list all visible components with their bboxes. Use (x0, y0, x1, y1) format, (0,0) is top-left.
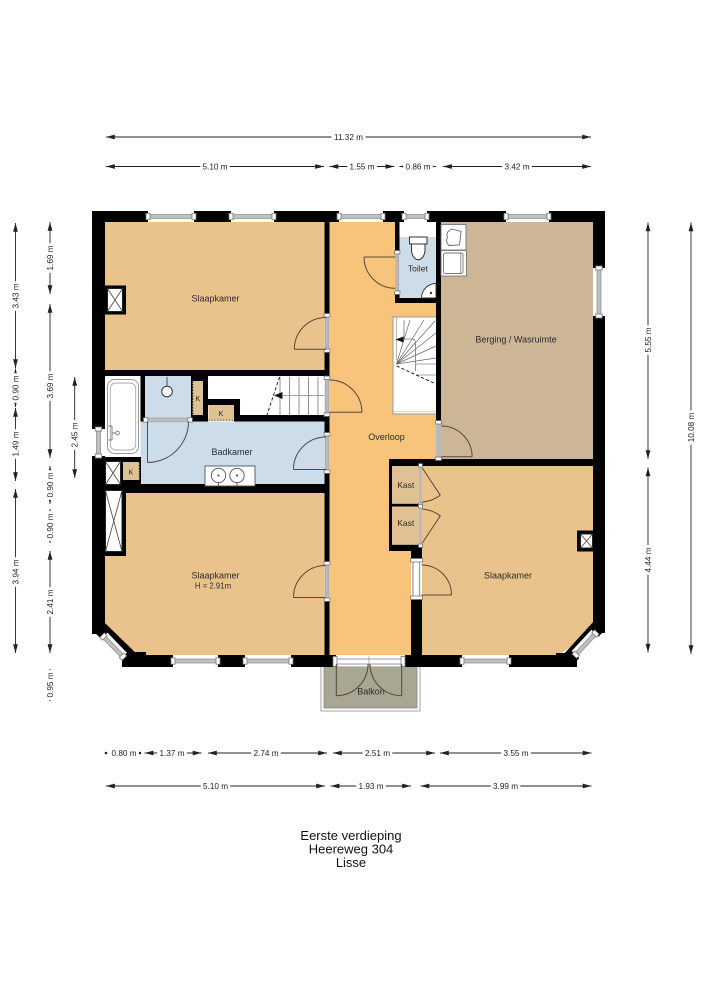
svg-text:Badkamer: Badkamer (211, 447, 252, 457)
svg-text:2.45 m: 2.45 m (71, 422, 80, 447)
svg-text:2.41 m: 2.41 m (46, 589, 55, 614)
svg-text:11.32 m: 11.32 m (334, 133, 363, 142)
svg-text:H = 2.91m: H = 2.91m (195, 582, 231, 591)
svg-text:3.43 m: 3.43 m (12, 283, 21, 308)
svg-text:Slaapkamer: Slaapkamer (484, 571, 532, 581)
svg-text:1.37 m: 1.37 m (159, 749, 184, 758)
svg-text:3.69 m: 3.69 m (46, 373, 55, 398)
svg-text:4.44 m: 4.44 m (644, 547, 653, 572)
svg-text:0.90 m: 0.90 m (46, 472, 55, 497)
svg-text:Kast: Kast (397, 480, 415, 490)
svg-text:Balkon: Balkon (357, 687, 385, 697)
svg-text:Overloop: Overloop (368, 432, 405, 442)
svg-text:1.55 m: 1.55 m (349, 163, 374, 172)
svg-text:2.51 m: 2.51 m (365, 749, 390, 758)
svg-text:5.55 m: 5.55 m (644, 327, 653, 352)
svg-text:Slaapkamer: Slaapkamer (191, 571, 239, 581)
svg-text:Lisse: Lisse (336, 855, 366, 870)
svg-text:K: K (195, 396, 200, 403)
svg-text:K: K (219, 411, 224, 418)
svg-text:0.86 m: 0.86 m (405, 163, 430, 172)
svg-text:Toilet: Toilet (408, 264, 428, 274)
svg-text:0.80 m: 0.80 m (111, 749, 136, 758)
svg-text:Kast: Kast (397, 518, 415, 528)
svg-text:0.90 m: 0.90 m (12, 375, 21, 400)
svg-text:1.49 m: 1.49 m (12, 431, 21, 456)
svg-text:Slaapkamer: Slaapkamer (191, 294, 239, 304)
svg-text:1.69 m: 1.69 m (46, 245, 55, 270)
svg-text:10.08 m: 10.08 m (687, 413, 696, 443)
svg-text:K: K (129, 470, 134, 477)
svg-text:5.10 m: 5.10 m (202, 163, 227, 172)
svg-text:3.99 m: 3.99 m (493, 782, 518, 791)
svg-text:1.93 m: 1.93 m (358, 782, 383, 791)
svg-text:0.95 m: 0.95 m (46, 672, 55, 697)
svg-text:3.94 m: 3.94 m (12, 559, 21, 584)
svg-text:2.74 m: 2.74 m (253, 749, 278, 758)
svg-text:0.90 m: 0.90 m (46, 513, 55, 538)
svg-text:3.42 m: 3.42 m (504, 163, 529, 172)
svg-text:5.10 m: 5.10 m (203, 782, 228, 791)
svg-text:Berging / Wasruimte: Berging / Wasruimte (475, 335, 556, 345)
svg-text:3.55 m: 3.55 m (503, 749, 528, 758)
